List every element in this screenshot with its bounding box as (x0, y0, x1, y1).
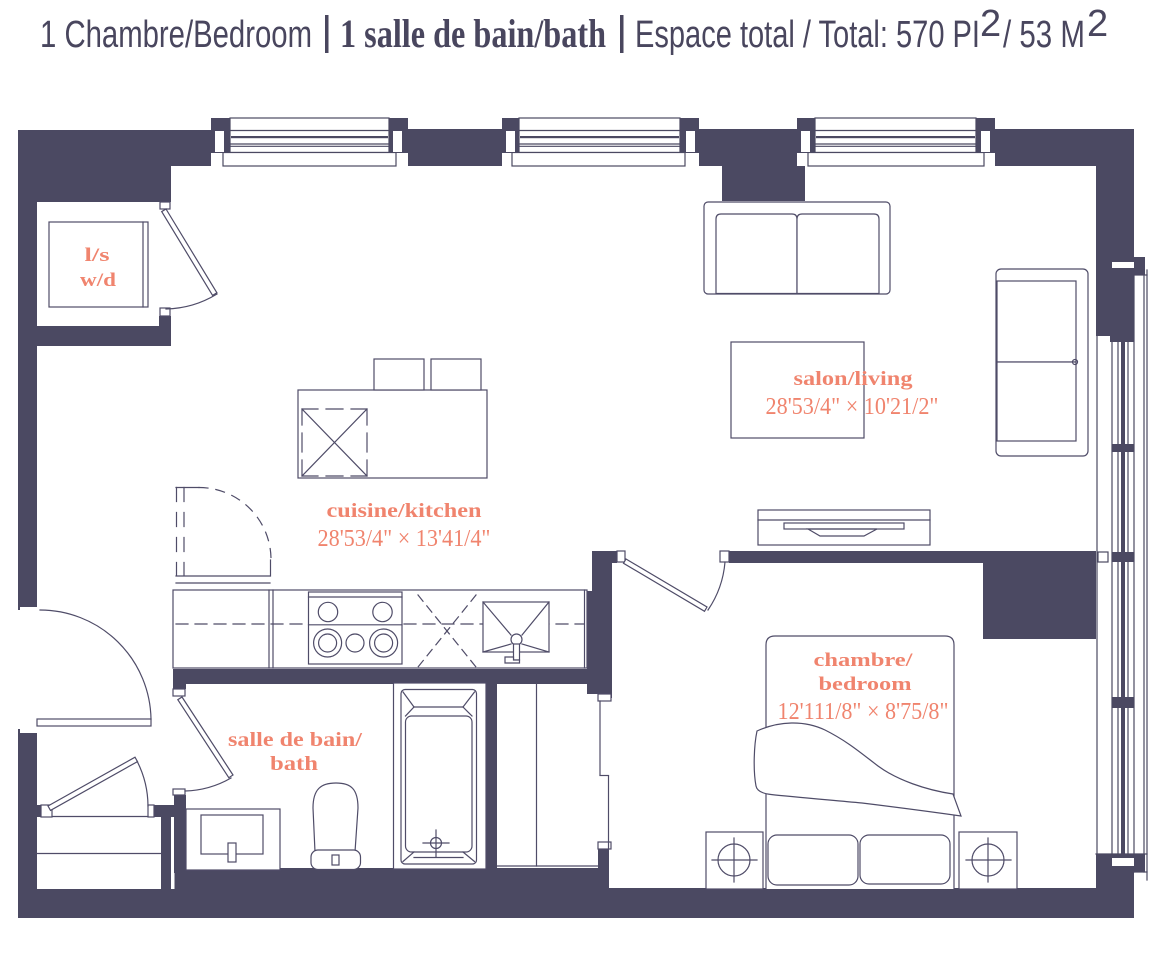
svg-text:salle de bain/: salle de bain/ (228, 729, 363, 751)
svg-text:l/s: l/s (85, 245, 110, 266)
svg-text:Espace total / Total: 570 PI: Espace total / Total: 570 PI (635, 14, 980, 56)
svg-text:cuisine/kitchen: cuisine/kitchen (327, 500, 482, 522)
svg-text:28'53/4" × 10'21/2": 28'53/4" × 10'21/2" (766, 394, 939, 420)
svg-text:2: 2 (1087, 3, 1108, 45)
svg-text:chambre/: chambre/ (814, 650, 914, 671)
svg-text:w/d: w/d (80, 270, 117, 291)
svg-text:1 Chambre/Bedroom: 1 Chambre/Bedroom (40, 14, 312, 56)
svg-text:2: 2 (980, 3, 1001, 45)
svg-text:bedroom: bedroom (819, 674, 912, 695)
svg-text:bath: bath (270, 753, 318, 775)
svg-text:12'111/8" × 8'75/8": 12'111/8" × 8'75/8" (778, 699, 949, 725)
svg-text:1 salle de bain/bath: 1 salle de bain/bath (340, 11, 606, 56)
svg-text:/ 53 M: / 53 M (1003, 14, 1085, 56)
svg-text:28'53/4" × 13'41/4": 28'53/4" × 13'41/4" (318, 526, 491, 552)
svg-text:salon/living: salon/living (794, 368, 913, 390)
